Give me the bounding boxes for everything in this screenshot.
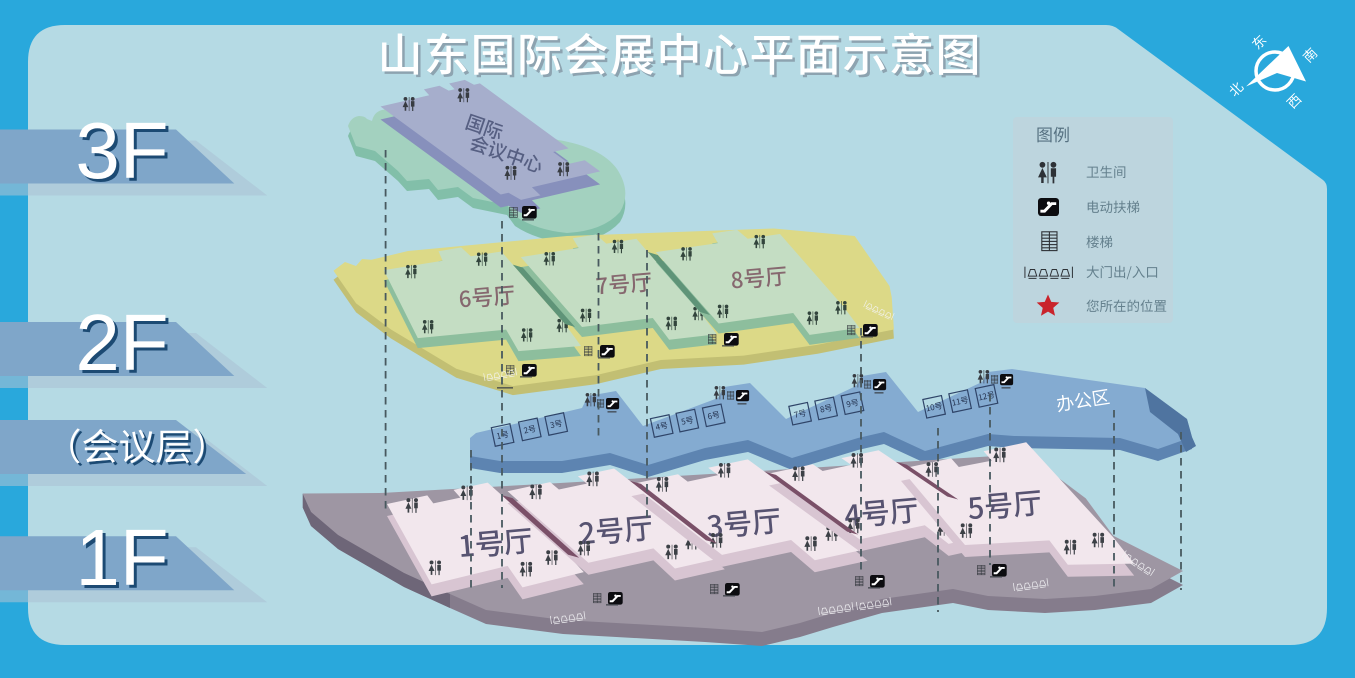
svg-text:3F: 3F [75,106,168,195]
svg-text:1F: 1F [75,513,168,602]
svg-text:2F: 2F [75,298,168,387]
